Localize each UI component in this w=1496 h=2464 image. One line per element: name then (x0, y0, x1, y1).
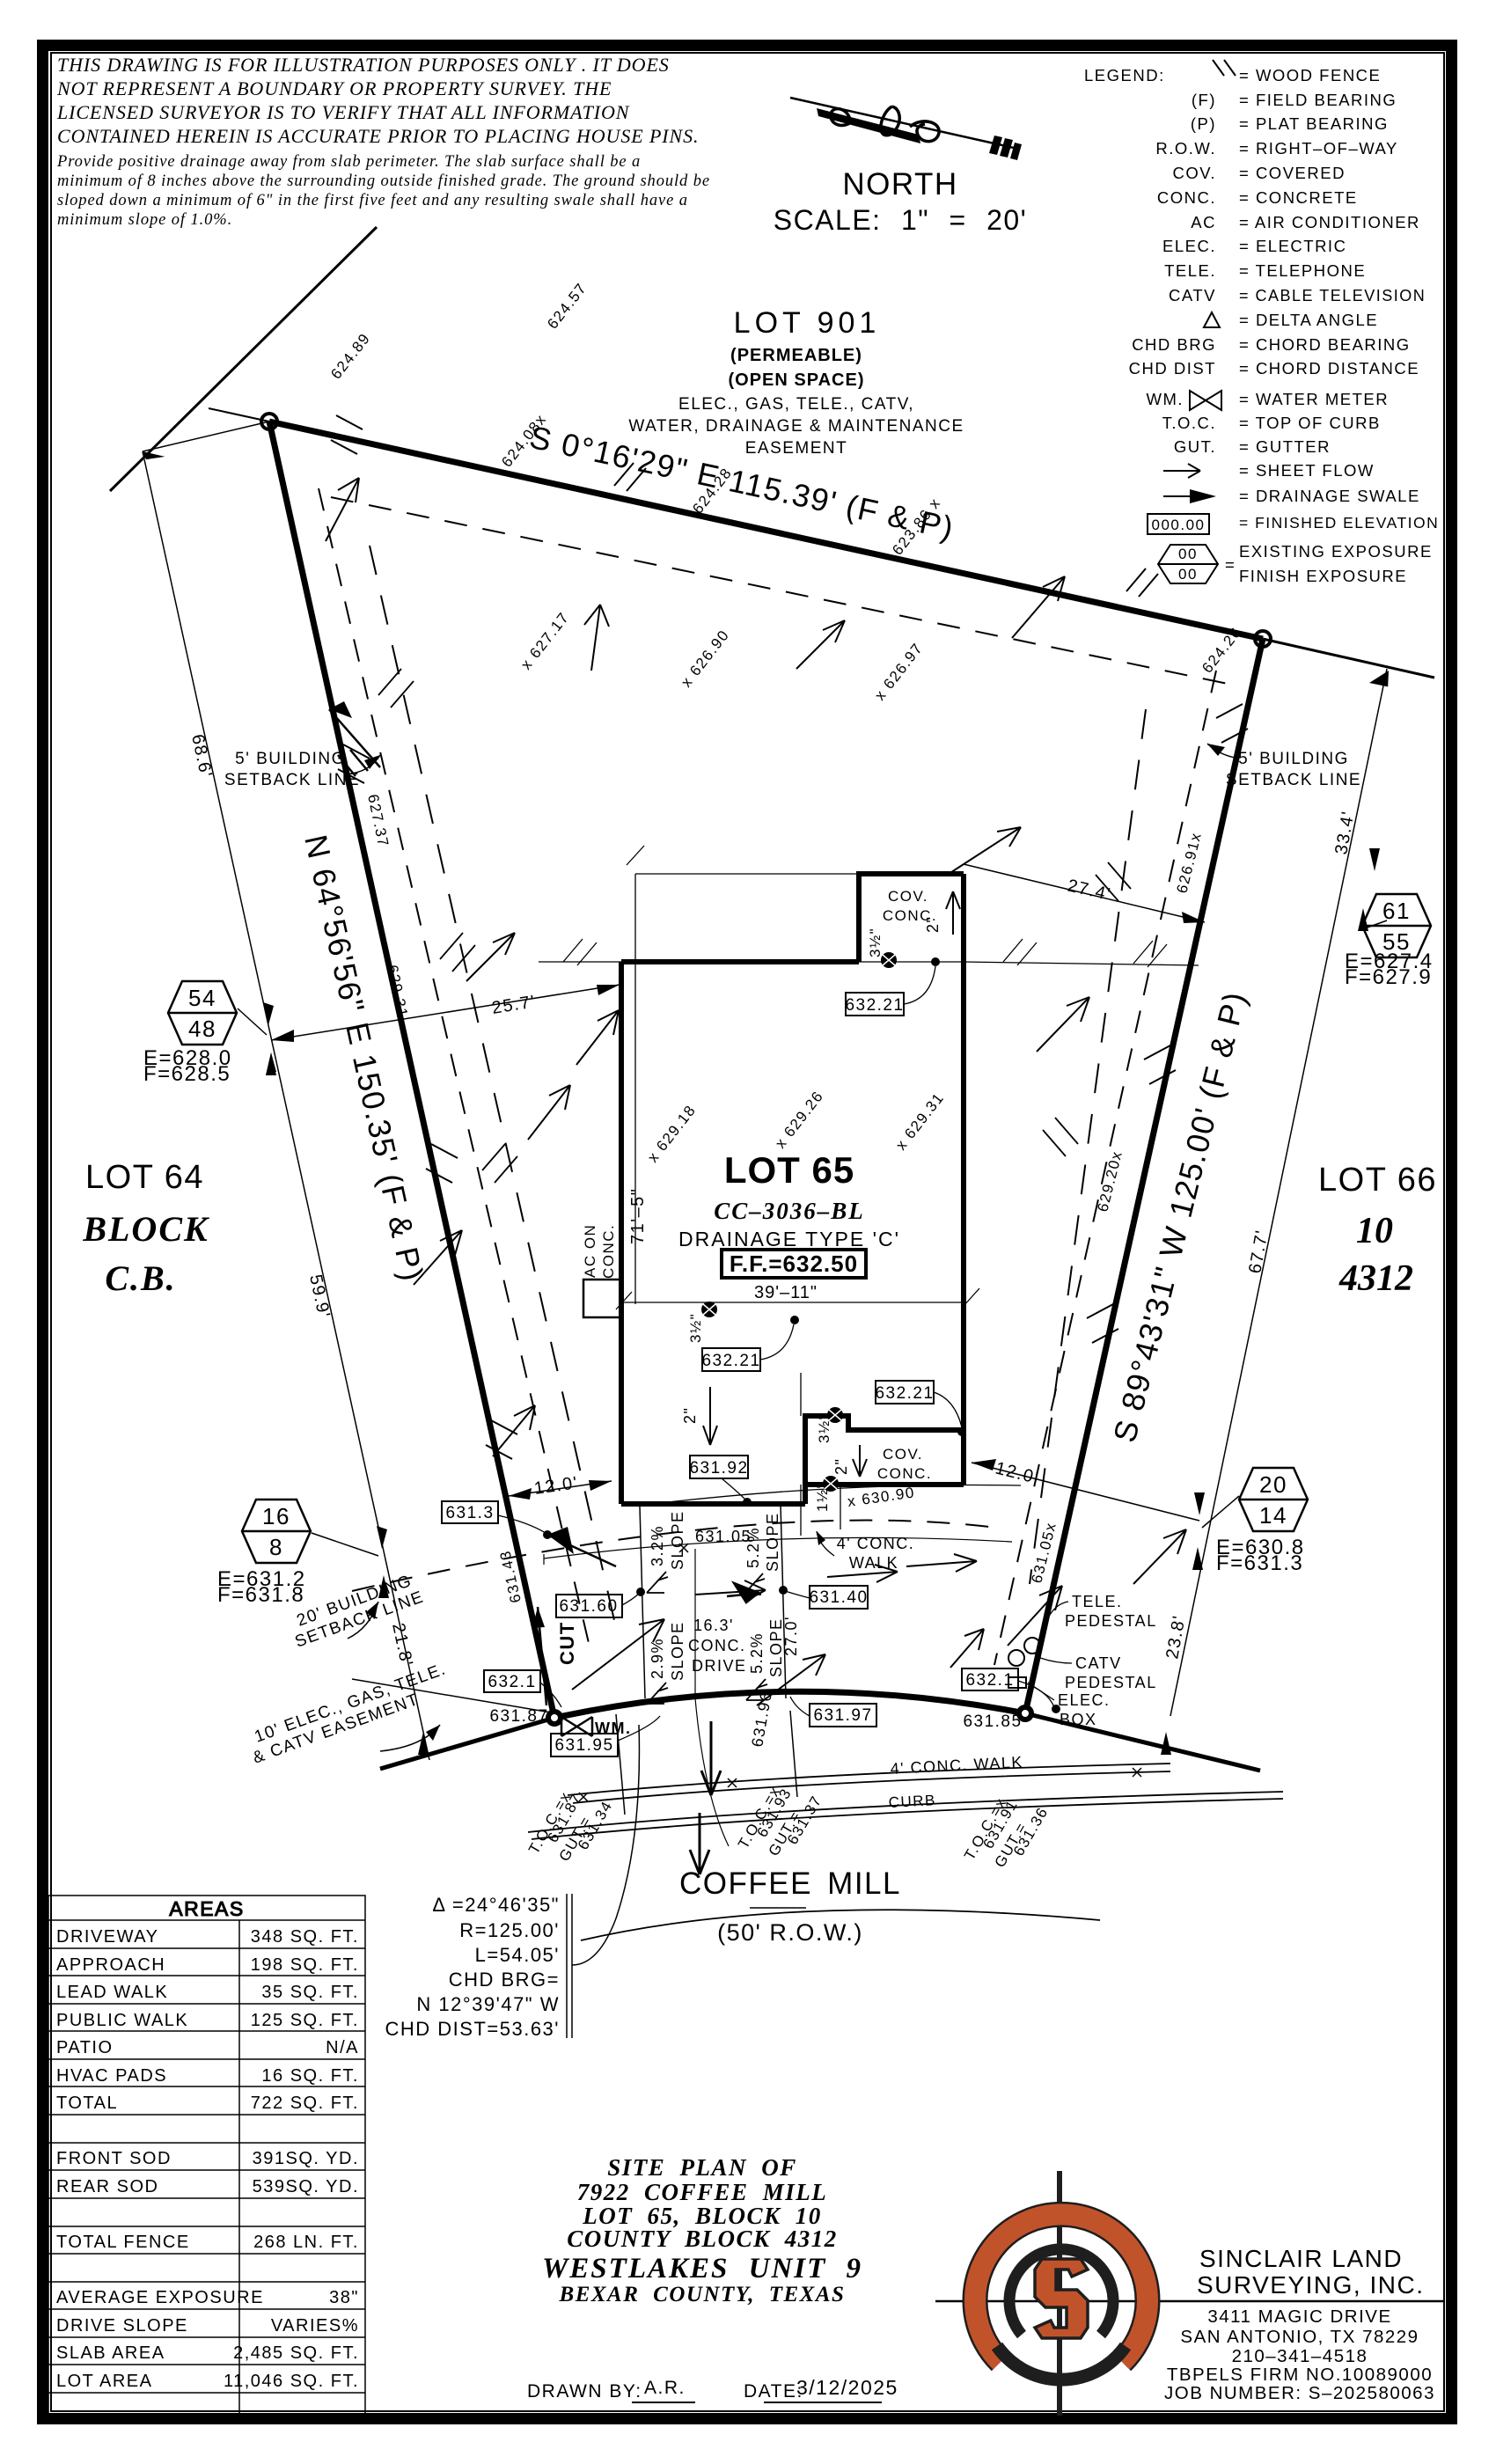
svg-text:C.B.: C.B. (105, 1258, 176, 1298)
svg-text:x 629.31: x 629.31 (892, 1089, 948, 1154)
svg-text:CONC.: CONC. (877, 1465, 932, 1482)
svg-text:EASEMENT: EASEMENT (745, 439, 848, 458)
svg-text:AC ON: AC ON (582, 1224, 598, 1278)
svg-text:x 629.18: x 629.18 (644, 1102, 700, 1166)
svg-text:16.3': 16.3' (693, 1617, 734, 1634)
svg-text:TOTAL FENCE: TOTAL FENCE (56, 2233, 190, 2252)
svg-text:BEXAR COUNTY, TEXAS: BEXAR COUNTY, TEXAS (559, 2283, 846, 2306)
svg-text:632.21: 632.21 (845, 996, 904, 1015)
svg-text:BLOCK: BLOCK (82, 1209, 209, 1249)
svg-text:539SQ. YD.: 539SQ. YD. (253, 2177, 359, 2196)
svg-text:631.96: 631.96 (748, 1690, 775, 1749)
svg-text:EXISTING EXPOSURE: EXISTING EXPOSURE (1239, 542, 1433, 561)
svg-text:67.7': 67.7' (1245, 1228, 1272, 1275)
svg-text:12.0': 12.0' (994, 1459, 1041, 1489)
svg-text:TOTAL: TOTAL (56, 2094, 118, 2113)
svg-text:8: 8 (269, 1534, 283, 1560)
svg-text:71'–5": 71'–5" (628, 1188, 648, 1244)
svg-text:R.O.W.: R.O.W. (1155, 139, 1216, 158)
svg-text:= CONCRETE: = CONCRETE (1239, 188, 1358, 207)
svg-text:= SHEET FLOW: = SHEET FLOW (1239, 461, 1375, 480)
svg-text:27.4': 27.4' (1066, 876, 1113, 905)
svg-text:21.8': 21.8' (388, 1621, 416, 1668)
svg-text:= DRAINAGE SWALE: = DRAINAGE SWALE (1239, 487, 1420, 505)
svg-text:59.9': 59.9' (305, 1272, 334, 1320)
svg-text:PATIO: PATIO (56, 2038, 114, 2057)
svg-text:23.8': 23.8' (1162, 1614, 1189, 1661)
svg-text:SITE PLAN OF: SITE PLAN OF (607, 2154, 797, 2181)
svg-text:14: 14 (1259, 1502, 1287, 1529)
svg-text:TELE.: TELE. (1072, 1593, 1123, 1610)
svg-text:CHD BRG: CHD BRG (1132, 335, 1216, 354)
svg-text:5' BUILDING: 5' BUILDING (235, 750, 346, 768)
svg-text:CONC.: CONC. (600, 1224, 617, 1279)
svg-text:= PLAT BEARING: = PLAT BEARING (1239, 114, 1389, 133)
svg-text:LICENSED SURVEYOR IS TO VERIFY: LICENSED SURVEYOR IS TO VERIFY THAT ALL … (56, 101, 630, 123)
svg-text:CHD DIST=53.63': CHD DIST=53.63' (385, 2018, 561, 2040)
svg-text:F=631.3: F=631.3 (1216, 1551, 1303, 1575)
svg-text:S 89°43'31" W 125.00' (F & P): S 89°43'31" W 125.00' (F & P) (1106, 987, 1253, 1446)
svg-text:F=628.5: F=628.5 (143, 1062, 231, 1086)
svg-text:x 626.90: x 626.90 (678, 627, 733, 691)
svg-text:7922 COFFEE MILL: 7922 COFFEE MILL (577, 2179, 828, 2205)
svg-text:=: = (1225, 555, 1236, 574)
svg-text:= TOP OF CURB: = TOP OF CURB (1239, 414, 1381, 432)
svg-text:= COVERED: = COVERED (1239, 164, 1346, 182)
svg-text:10: 10 (1356, 1211, 1393, 1251)
svg-text:3½": 3½" (867, 928, 884, 957)
svg-text:CURB: CURB (888, 1792, 936, 1811)
svg-text:NORTH: NORTH (842, 167, 957, 202)
svg-text:SAN ANTONIO, TX 78229: SAN ANTONIO, TX 78229 (1180, 2327, 1419, 2347)
svg-text:631.97: 631.97 (813, 1706, 872, 1725)
svg-text:CATV: CATV (1169, 286, 1216, 304)
svg-text:16 SQ. FT.: 16 SQ. FT. (261, 2066, 359, 2086)
svg-text:HVAC PADS: HVAC PADS (56, 2066, 167, 2086)
svg-text:631.95: 631.95 (554, 1736, 613, 1755)
svg-text:PEDESTAL: PEDESTAL (1065, 1612, 1157, 1630)
svg-text:x 626.97: x 626.97 (871, 640, 927, 704)
svg-text:F=631.8: F=631.8 (217, 1583, 304, 1607)
svg-text:WM.: WM. (1146, 390, 1184, 408)
svg-text:LOT 65: LOT 65 (724, 1149, 854, 1191)
svg-text:ELEC.: ELEC. (1162, 237, 1216, 255)
svg-text:627.37: 627.37 (364, 793, 392, 849)
svg-text:DRIVEWAY: DRIVEWAY (56, 1927, 158, 1947)
svg-text:COV.: COV. (1172, 164, 1216, 182)
svg-text:= DELTA ANGLE: = DELTA ANGLE (1239, 311, 1378, 329)
svg-text:125 SQ. FT.: 125 SQ. FT. (251, 2011, 359, 2030)
svg-text:268 LN. FT.: 268 LN. FT. (253, 2233, 359, 2252)
svg-text:(P): (P) (1191, 114, 1216, 133)
svg-text:3.2%: 3.2% (649, 1525, 666, 1566)
svg-text:27.0': 27.0' (782, 1616, 800, 1656)
svg-text:= CABLE TELEVISION: = CABLE TELEVISION (1239, 287, 1426, 304)
svg-text:COFFEE MILL: COFFEE MILL (679, 1866, 901, 1901)
svg-text:AVERAGE EXPOSURE: AVERAGE EXPOSURE (56, 2288, 264, 2307)
svg-text:624.57: 624.57 (544, 280, 590, 333)
svg-text:LEAD WALK: LEAD WALK (56, 1983, 168, 2002)
svg-text:(50' R.O.W.): (50' R.O.W.) (717, 1919, 863, 1946)
svg-text:3½": 3½" (687, 1313, 704, 1343)
svg-text:SETBACK LINE: SETBACK LINE (1226, 771, 1361, 789)
svg-text:COV.: COV. (888, 888, 928, 905)
svg-text:BOX: BOX (1060, 1711, 1097, 1728)
svg-text:CONTAINED HEREIN IS ACCURATE P: CONTAINED HEREIN IS ACCURATE PRIOR TO PL… (57, 125, 699, 147)
svg-text:LEGEND:: LEGEND: (1084, 66, 1165, 84)
svg-text:629.31: 629.31 (384, 964, 411, 1020)
svg-text:= GUTTER: = GUTTER (1239, 437, 1331, 456)
svg-text:(PERMEABLE): (PERMEABLE) (730, 346, 862, 365)
svg-text:AC: AC (1191, 213, 1216, 231)
svg-text:16: 16 (262, 1503, 290, 1529)
svg-text:CONC.: CONC. (1157, 188, 1216, 207)
svg-text:DRIVE SLOPE: DRIVE SLOPE (56, 2316, 188, 2336)
svg-text:25.7': 25.7' (490, 992, 537, 1018)
svg-text:631.87: 631.87 (489, 1707, 548, 1726)
svg-text:minimum slope of 1.0%.: minimum slope of 1.0%. (57, 211, 232, 229)
svg-text:SCALE: 1" = 20': SCALE: 1" = 20' (774, 204, 1028, 236)
svg-text:632.1: 632.1 (965, 1671, 1014, 1690)
svg-text:LOT 901: LOT 901 (734, 306, 881, 340)
svg-text:33.4': 33.4' (1331, 810, 1358, 856)
svg-text:391SQ. YD.: 391SQ. YD. (253, 2149, 359, 2168)
svg-text:2": 2" (924, 916, 942, 933)
svg-text:x 627.17: x 627.17 (517, 609, 573, 673)
svg-text:38": 38" (329, 2288, 359, 2307)
svg-text:T.O.C.: T.O.C. (1162, 414, 1216, 432)
svg-text:632.1: 632.1 (488, 1673, 536, 1691)
svg-text:PEDESTAL: PEDESTAL (1065, 1674, 1157, 1691)
svg-text:R=125.00': R=125.00' (459, 1919, 560, 1941)
svg-text:= CHORD DISTANCE: = CHORD DISTANCE (1239, 359, 1419, 378)
svg-text:LOT 64: LOT 64 (85, 1159, 204, 1196)
svg-text:LOT 66: LOT 66 (1318, 1162, 1437, 1199)
svg-text:CATV: CATV (1075, 1654, 1122, 1672)
svg-text:2.9%: 2.9% (649, 1638, 666, 1679)
svg-text:722 SQ. FT.: 722 SQ. FT. (251, 2094, 359, 2113)
svg-text:SURVEYING, INC.: SURVEYING, INC. (1197, 2271, 1424, 2299)
svg-text:00: 00 (1178, 546, 1198, 562)
svg-text:= FIELD BEARING: = FIELD BEARING (1239, 91, 1397, 109)
svg-text:= RIGHT–OF–WAY: = RIGHT–OF–WAY (1239, 139, 1398, 158)
svg-text:= ELECTRIC: = ELECTRIC (1239, 237, 1346, 255)
svg-text:A.R.: A.R. (644, 2378, 686, 2398)
svg-text:= AIR CONDITIONER: = AIR CONDITIONER (1239, 213, 1420, 231)
svg-text:DRIVE: DRIVE (692, 1657, 747, 1675)
svg-text:2,485 SQ. FT.: 2,485 SQ. FT. (233, 2343, 359, 2363)
svg-text:CHD BRG=: CHD BRG= (449, 1969, 560, 1991)
svg-text:39'–11": 39'–11" (754, 1283, 818, 1302)
svg-text:(F): (F) (1192, 91, 1216, 109)
svg-text:TBPELS FIRM NO.10089000: TBPELS FIRM NO.10089000 (1167, 2365, 1433, 2385)
svg-text:FINISH EXPOSURE: FINISH EXPOSURE (1239, 567, 1407, 585)
svg-text:(OPEN SPACE): (OPEN SPACE) (729, 370, 865, 390)
svg-text:Δ =24°46'35": Δ =24°46'35" (432, 1894, 560, 1916)
svg-text:3411 MAGIC DRIVE: 3411 MAGIC DRIVE (1207, 2306, 1391, 2327)
svg-text:12.0': 12.0' (533, 1473, 580, 1499)
svg-text:TELE.: TELE. (1164, 261, 1216, 280)
svg-text:AREAS: AREAS (169, 1897, 244, 1920)
svg-text:THIS DRAWING IS FOR ILLUSTRATI: THIS DRAWING IS FOR ILLUSTRATION PURPOSE… (57, 54, 670, 76)
svg-text:631.05: 631.05 (695, 1528, 752, 1545)
svg-text:sloped down a minimum of 6" in: sloped down a minimum of 6" in the first… (57, 192, 688, 209)
svg-text:00: 00 (1178, 566, 1198, 583)
svg-text:629.20x: 629.20x (1094, 1148, 1126, 1213)
svg-text:210–341–4518: 210–341–4518 (1232, 2346, 1368, 2366)
svg-text:DATE:: DATE: (744, 2381, 803, 2402)
svg-text:N/A: N/A (326, 2038, 359, 2057)
svg-text:L=54.05': L=54.05' (475, 1944, 560, 1966)
svg-text:COUNTY BLOCK 4312: COUNTY BLOCK 4312 (567, 2226, 838, 2252)
svg-text:CUT: CUT (556, 1621, 578, 1665)
svg-text:631.40: 631.40 (809, 1588, 868, 1607)
svg-text:61: 61 (1382, 898, 1411, 924)
svg-text:LOT AREA: LOT AREA (56, 2372, 152, 2391)
svg-text:SLOPE: SLOPE (764, 1512, 781, 1572)
svg-text:WM.: WM. (595, 1720, 631, 1737)
svg-text:PUBLIC WALK: PUBLIC WALK (56, 2011, 188, 2030)
svg-text:68.6': 68.6' (187, 732, 216, 780)
svg-text:624.89: 624.89 (327, 330, 374, 383)
svg-text:4' CONC.: 4' CONC. (837, 1535, 914, 1552)
svg-text:2": 2" (832, 1458, 850, 1475)
svg-text:348 SQ. FT.: 348 SQ. FT. (251, 1927, 359, 1947)
svg-text:ELEC.: ELEC. (1058, 1691, 1111, 1709)
svg-text:REAR SOD: REAR SOD (56, 2177, 158, 2196)
svg-text:631.92: 631.92 (689, 1459, 748, 1478)
svg-text:SLOPE: SLOPE (669, 1621, 686, 1681)
svg-text:198 SQ. FT.: 198 SQ. FT. (251, 1955, 359, 1975)
svg-text:F=627.9: F=627.9 (1345, 965, 1432, 989)
svg-text:3/12/2025: 3/12/2025 (796, 2376, 898, 2399)
svg-text:F.F.=632.50: F.F.=632.50 (730, 1250, 858, 1277)
svg-text:CHD DIST: CHD DIST (1129, 359, 1216, 378)
svg-text:= CHORD BEARING: = CHORD BEARING (1239, 335, 1411, 354)
svg-text:NOT REPRESENT A BOUNDARY OR PR: NOT REPRESENT A BOUNDARY OR PROPERTY SUR… (56, 77, 612, 99)
svg-text:631.60: 631.60 (559, 1597, 618, 1616)
svg-text:GUT.: GUT. (1174, 437, 1216, 456)
svg-text:CONC.: CONC. (688, 1637, 746, 1654)
svg-text:2": 2" (681, 1407, 699, 1424)
svg-text:000.00: 000.00 (1152, 517, 1206, 533)
svg-text:54: 54 (188, 985, 216, 1011)
svg-text:minimum of 8 inches above the: minimum of 8 inches above the surroundin… (57, 172, 710, 190)
svg-text:= FINISHED ELEVATION: = FINISHED ELEVATION (1239, 514, 1439, 532)
svg-text:5' BUILDING: 5' BUILDING (1238, 750, 1349, 768)
svg-text:631.3: 631.3 (445, 1504, 494, 1522)
svg-text:20: 20 (1259, 1471, 1287, 1498)
svg-text:631.85: 631.85 (963, 1712, 1022, 1731)
svg-text:11,046 SQ. FT.: 11,046 SQ. FT. (224, 2372, 359, 2391)
svg-text:SLAB AREA: SLAB AREA (56, 2343, 165, 2363)
svg-text:FRONT SOD: FRONT SOD (56, 2149, 172, 2168)
svg-text:DRAINAGE TYPE 'C': DRAINAGE TYPE 'C' (678, 1228, 900, 1250)
svg-text:632.21: 632.21 (875, 1384, 934, 1403)
svg-text:SETBACK LINE: SETBACK LINE (224, 771, 360, 789)
svg-text:SINCLAIR LAND: SINCLAIR LAND (1199, 2245, 1403, 2272)
svg-text:DRAWN BY:: DRAWN BY: (527, 2381, 642, 2402)
svg-text:N 12°39'47" W: N 12°39'47" W (416, 1993, 560, 2015)
svg-text:= WATER METER: = WATER METER (1239, 390, 1389, 408)
svg-text:632.21: 632.21 (701, 1352, 760, 1370)
svg-text:ELEC., GAS, TELE., CATV,: ELEC., GAS, TELE., CATV, (678, 395, 914, 414)
svg-text:= WOOD FENCE: = WOOD FENCE (1239, 66, 1381, 84)
svg-text:VARIES%: VARIES% (271, 2316, 359, 2336)
svg-text:4' CONC. WALK: 4' CONC. WALK (890, 1753, 1023, 1778)
svg-text:5.2%: 5.2% (748, 1632, 766, 1674)
svg-text:CC–3036–BL: CC–3036–BL (714, 1198, 865, 1224)
svg-text:x 629.26: x 629.26 (772, 1088, 827, 1152)
svg-text:APPROACH: APPROACH (56, 1955, 165, 1975)
svg-text:WATER, DRAINAGE & MAINTENANCE: WATER, DRAINAGE & MAINTENANCE (628, 417, 964, 436)
svg-text:35 SQ. FT.: 35 SQ. FT. (261, 1983, 359, 2002)
svg-text:48: 48 (188, 1016, 216, 1042)
svg-text:= TELEPHONE: = TELEPHONE (1239, 261, 1366, 280)
svg-text:WESTLAKES UNIT 9: WESTLAKES UNIT 9 (542, 2253, 862, 2284)
svg-text:Provide positive drainage away: Provide positive drainage away from slab… (56, 153, 641, 171)
svg-text:4312: 4312 (1338, 1258, 1413, 1299)
svg-text:JOB NUMBER: S–202580063: JOB NUMBER: S–202580063 (1164, 2383, 1435, 2403)
svg-text:COV.: COV. (883, 1446, 923, 1463)
svg-text:SLOPE: SLOPE (669, 1510, 686, 1570)
